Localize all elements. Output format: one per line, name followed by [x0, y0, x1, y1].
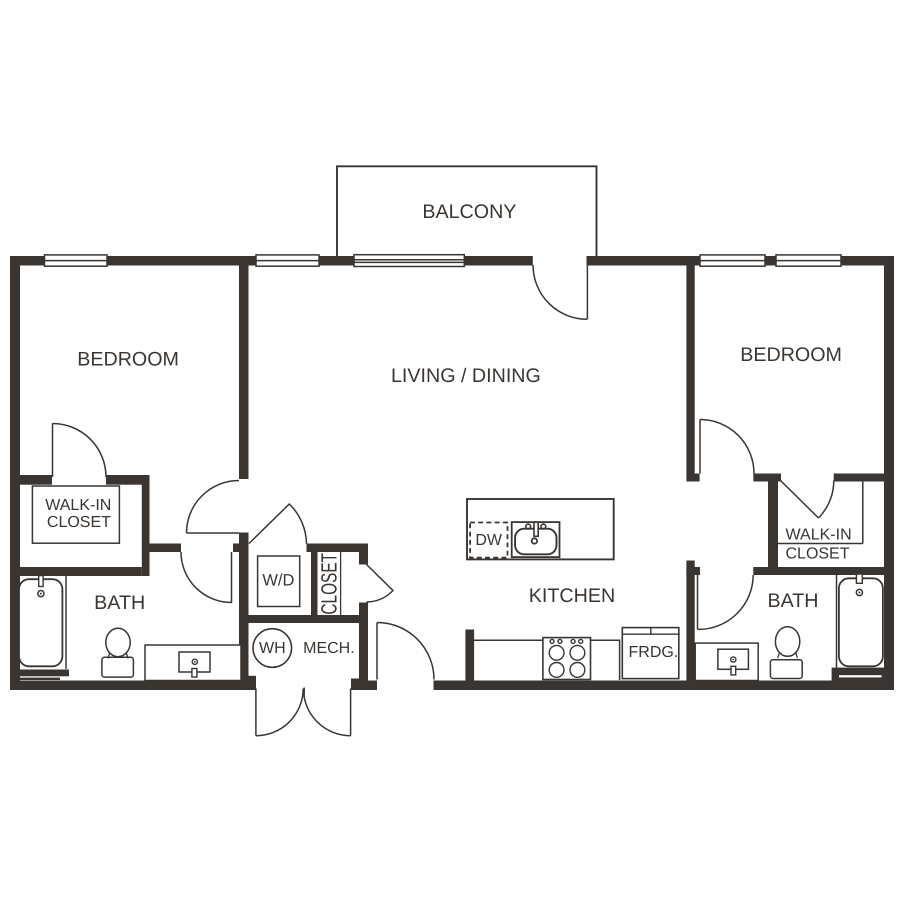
svg-text:BATH: BATH — [767, 590, 818, 612]
svg-text:CLOSET: CLOSET — [317, 553, 342, 615]
svg-text:BATH: BATH — [94, 592, 145, 614]
svg-text:CLOSET: CLOSET — [785, 546, 849, 563]
svg-text:KITCHEN: KITCHEN — [529, 585, 615, 607]
svg-text:BEDROOM: BEDROOM — [77, 349, 179, 371]
svg-text:FRDG.: FRDG. — [629, 644, 679, 661]
svg-text:BEDROOM: BEDROOM — [740, 344, 842, 366]
svg-text:DW: DW — [475, 532, 503, 549]
svg-text:WH: WH — [259, 640, 286, 657]
svg-text:WALK-IN: WALK-IN — [786, 527, 852, 544]
svg-text:CLOSET: CLOSET — [47, 514, 111, 531]
svg-text:WALK-IN: WALK-IN — [45, 497, 111, 514]
svg-text:MECH.: MECH. — [303, 640, 355, 657]
svg-text:BALCONY: BALCONY — [422, 201, 516, 223]
svg-text:W/D: W/D — [262, 572, 294, 590]
svg-text:LIVING / DINING: LIVING / DINING — [391, 365, 541, 387]
